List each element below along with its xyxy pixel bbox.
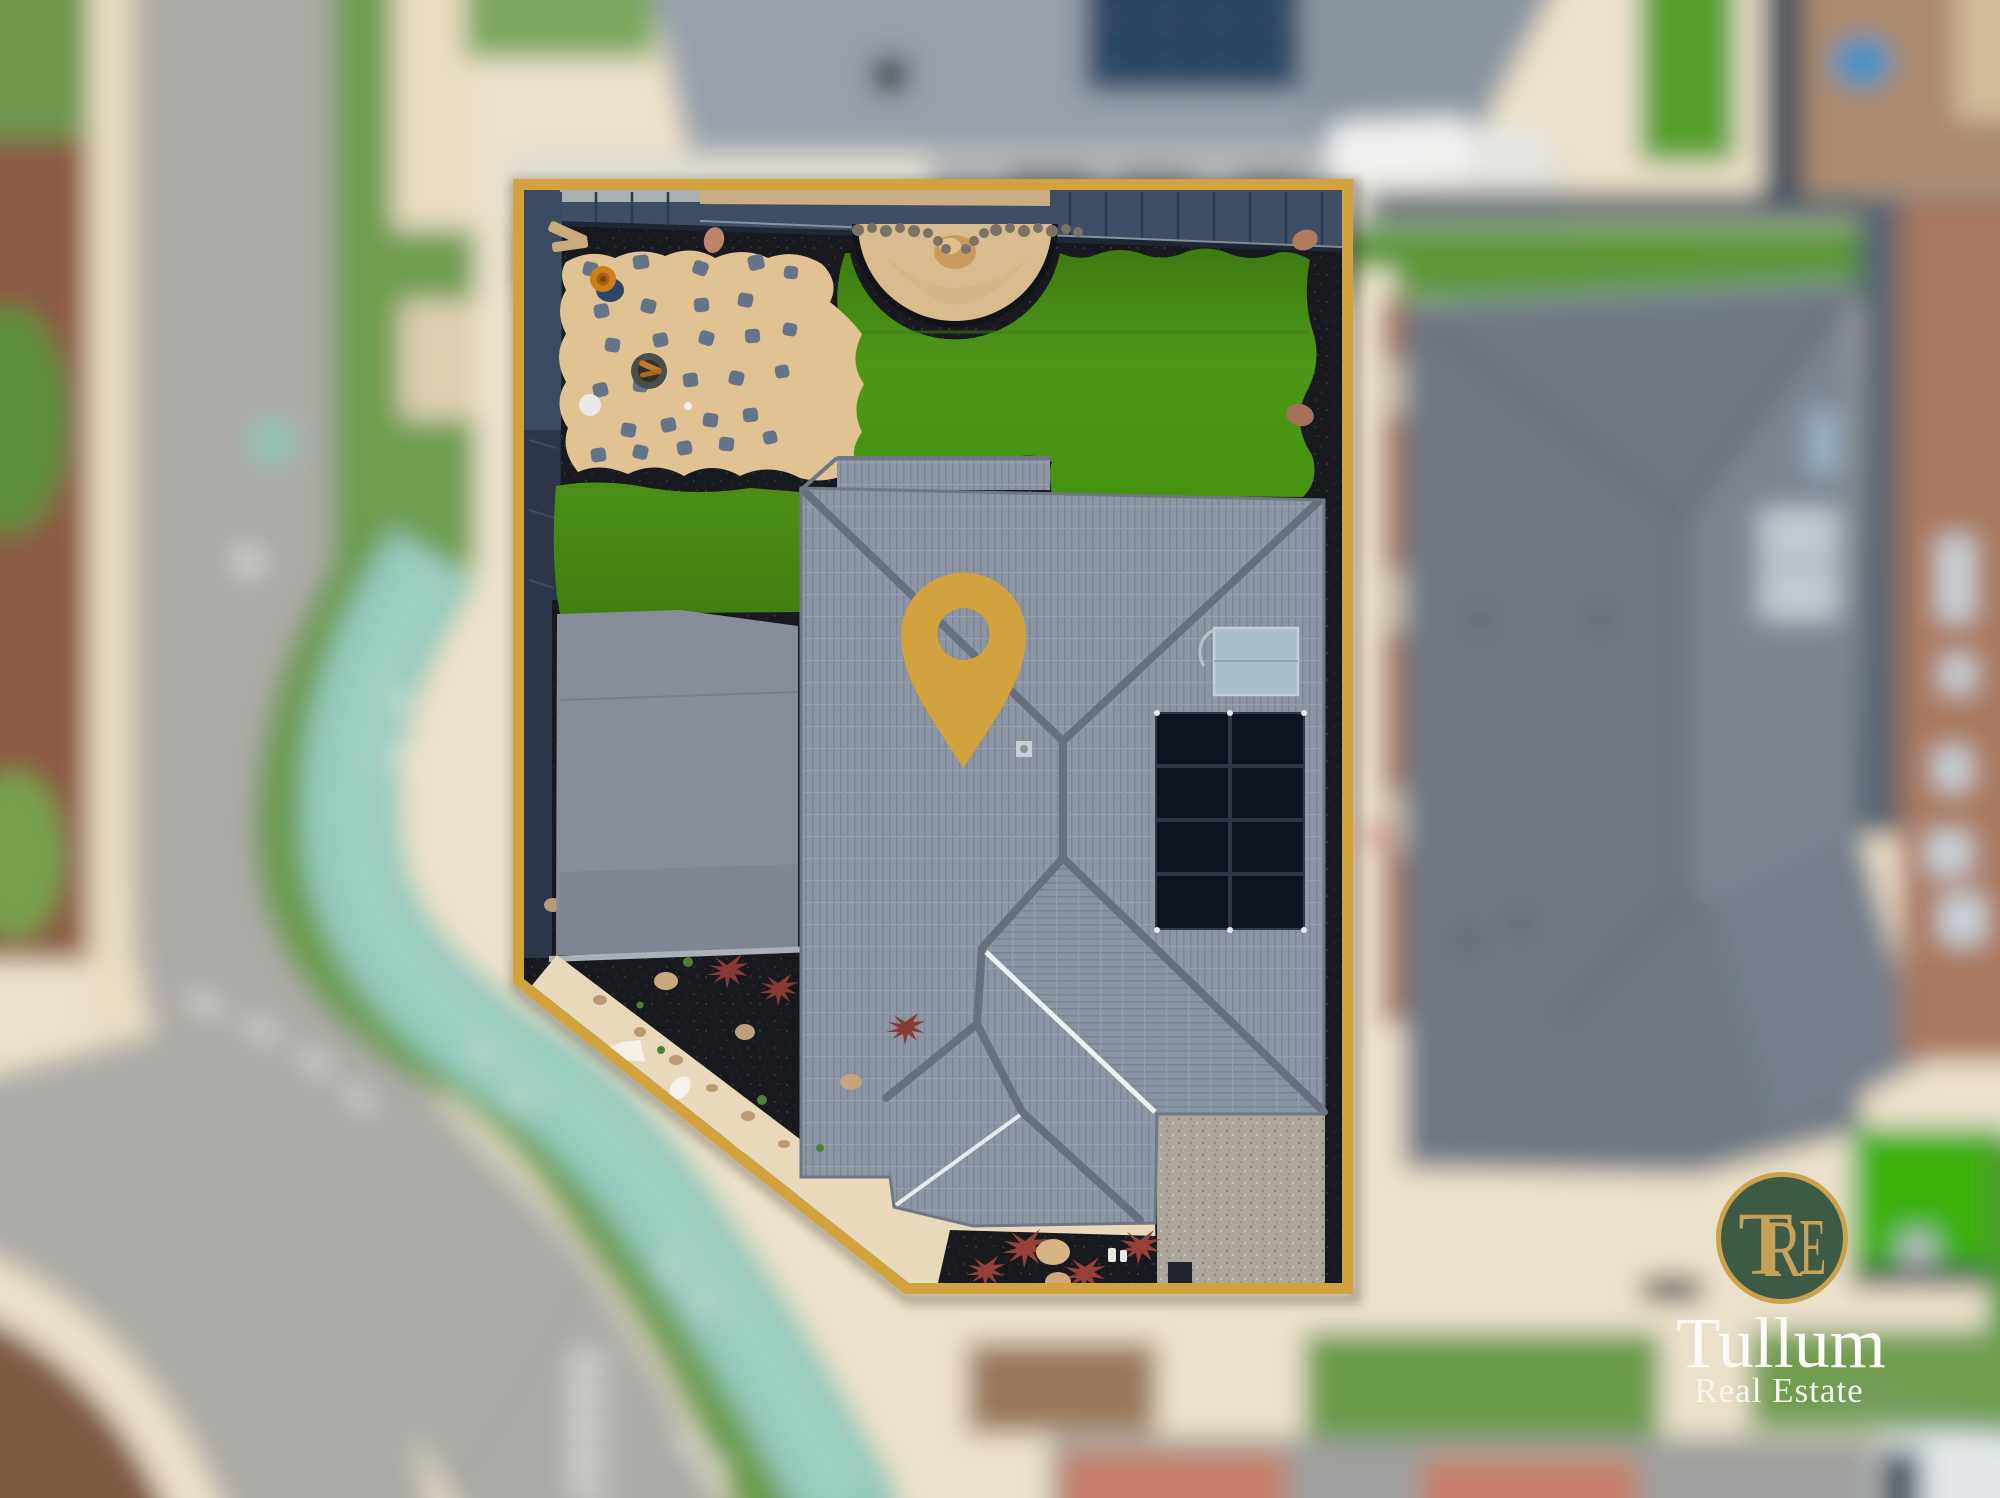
svg-text:Real Estate: Real Estate <box>1694 1371 1863 1410</box>
svg-text:R: R <box>1763 1204 1803 1295</box>
svg-text:E: E <box>1799 1204 1826 1293</box>
